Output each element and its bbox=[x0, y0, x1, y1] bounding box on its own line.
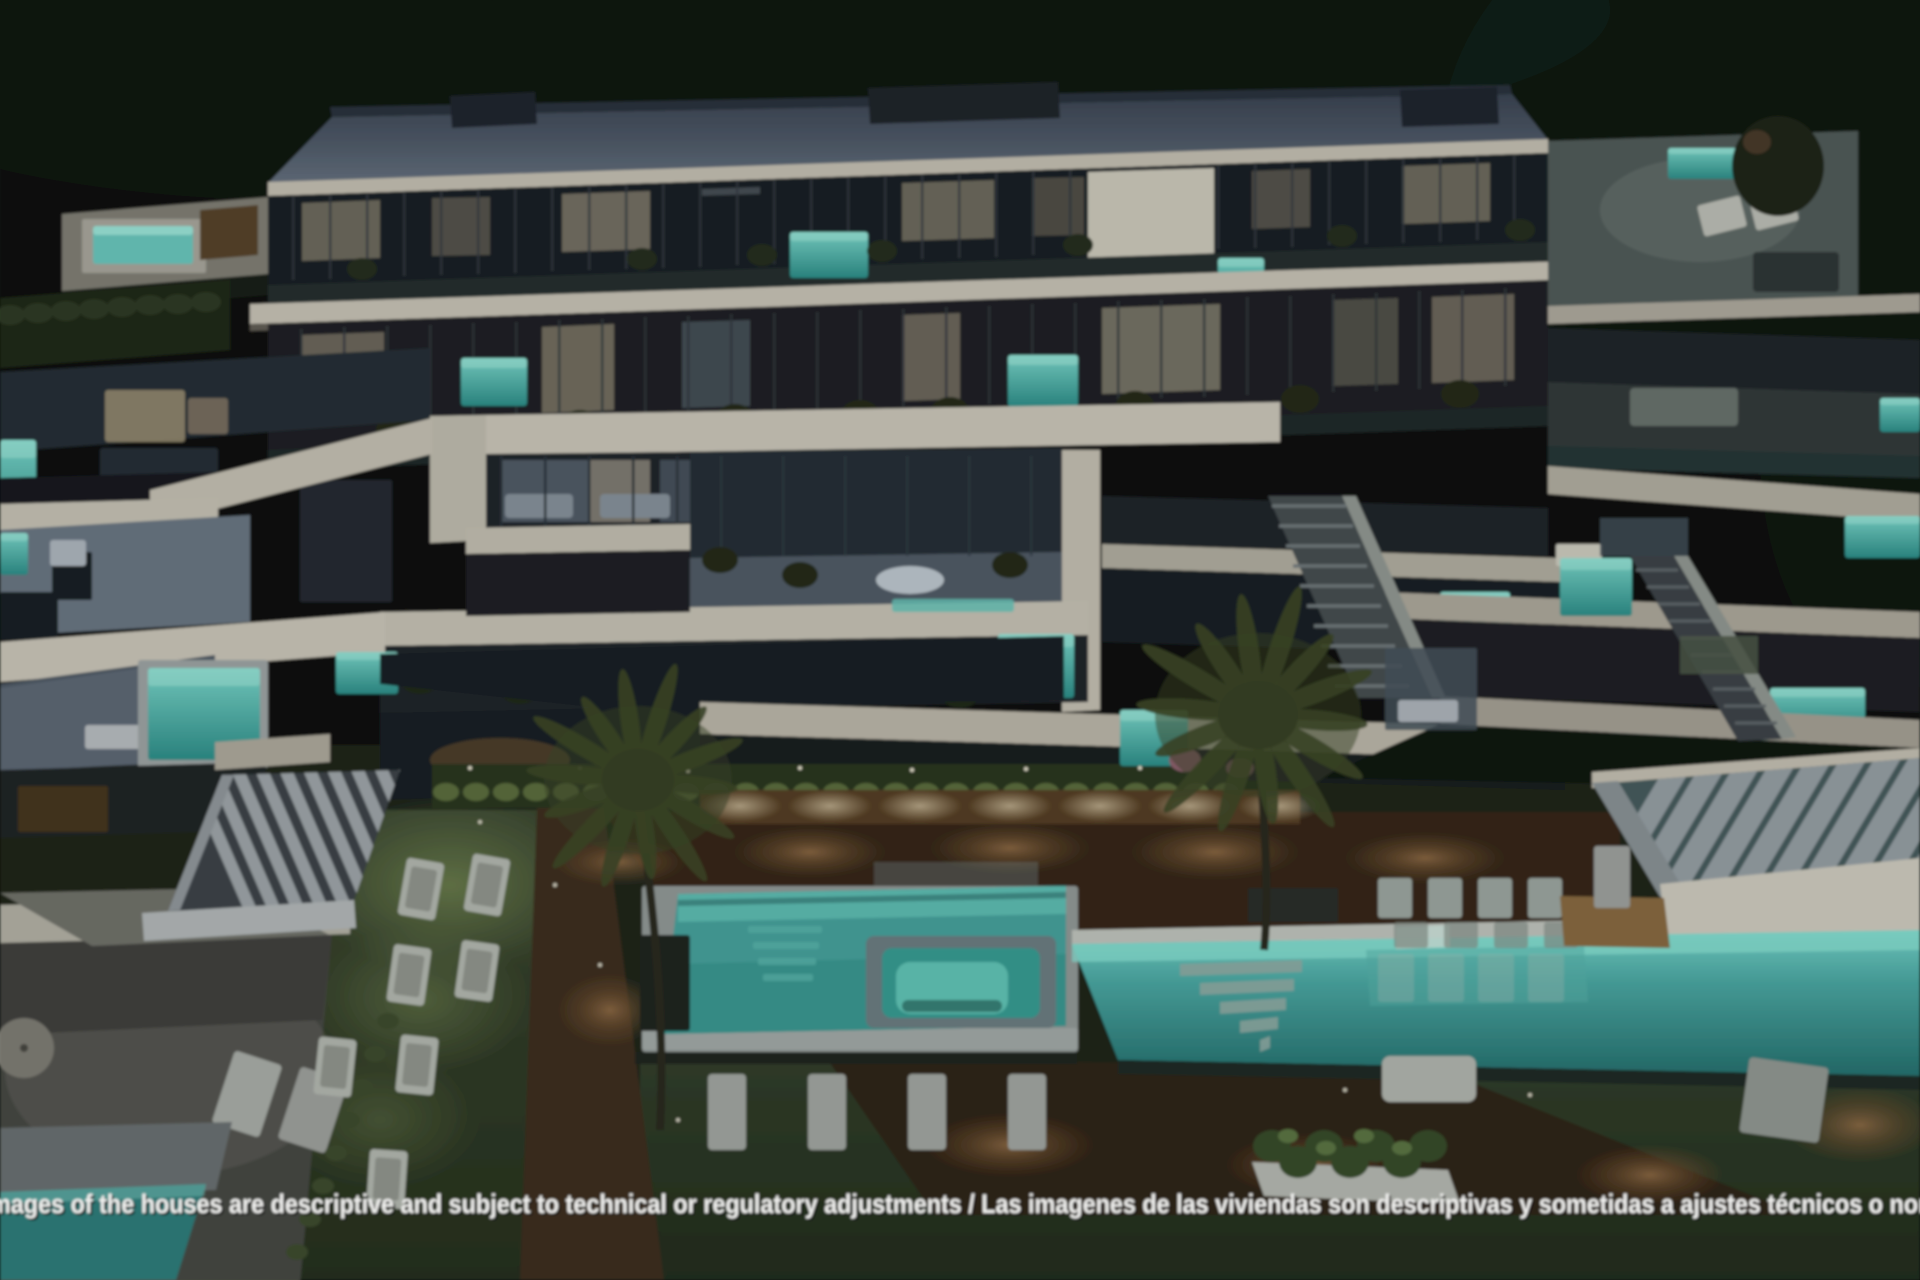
svg-text:mages of the houses are descri: mages of the houses are descriptive and … bbox=[0, 1189, 1920, 1219]
